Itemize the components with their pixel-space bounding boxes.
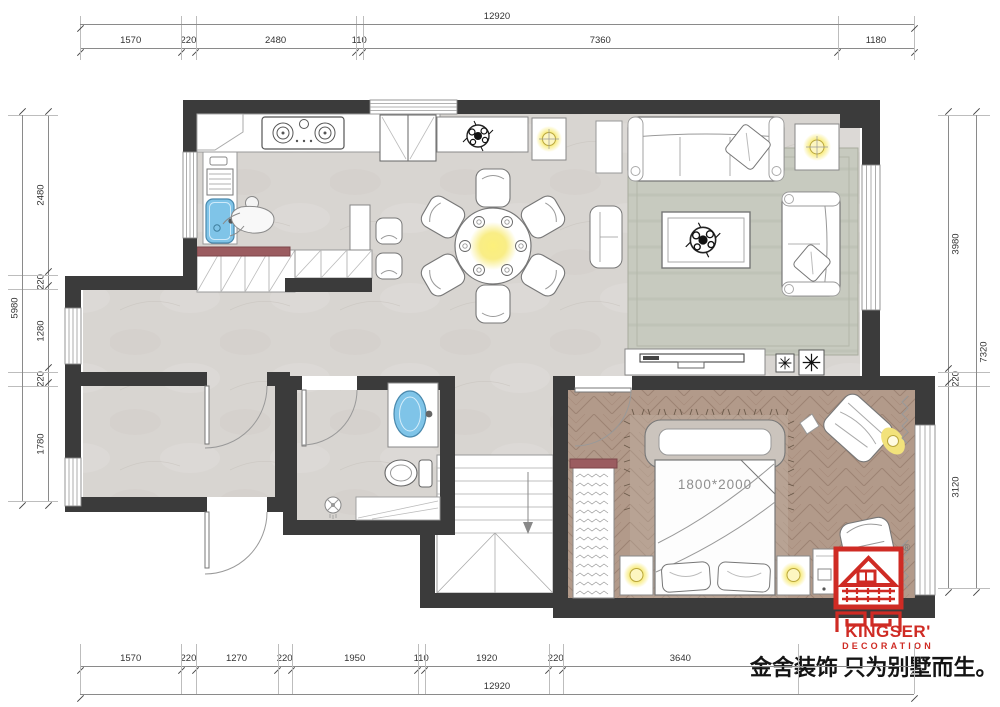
- red-wardrobe-strip: [570, 459, 617, 468]
- coffee-table: [662, 212, 750, 268]
- dim-label: 1920: [476, 653, 497, 664]
- door-exterior: [205, 512, 267, 574]
- stove: [262, 117, 344, 149]
- dimension-line-bottom: 15702201270220195011019202203640: [80, 652, 914, 667]
- kingser-logo-icon: [836, 549, 901, 632]
- dim-label: 3640: [670, 653, 691, 664]
- plant-icon: [803, 354, 821, 372]
- dim-label: 220: [548, 653, 564, 664]
- bed: [645, 420, 785, 595]
- dimension-line-left: 248022012802201780: [34, 115, 49, 501]
- dim-total-label: 12920: [484, 681, 510, 692]
- dimension-total-right: 7320: [976, 115, 991, 588]
- bed-size-label: 1800*2000: [655, 477, 775, 492]
- kitchen-sink: [206, 199, 234, 243]
- dim-total-label: 12920: [484, 11, 510, 22]
- dim-label: 3120: [951, 477, 962, 498]
- window-kitchen-left: [183, 152, 197, 238]
- logo-wordmark: KINGSER': [833, 622, 943, 642]
- dim-total-label: 5980: [10, 297, 21, 318]
- window-living-right: [862, 165, 880, 310]
- dim-label: 1950: [344, 653, 365, 664]
- bar-stool: [376, 253, 402, 279]
- red-counter-strip: [197, 247, 290, 256]
- dish-rack: [207, 169, 233, 195]
- loveseat: [782, 192, 840, 296]
- dim-label: 7360: [590, 35, 611, 46]
- registered-mark-icon: ®: [903, 543, 910, 554]
- pillow: [661, 561, 711, 592]
- shower-tray: [356, 497, 440, 520]
- dimension-line-top: 1570220248011073601180: [80, 34, 914, 49]
- dim-label: 1280: [36, 320, 47, 341]
- dim-label: 220: [181, 35, 197, 46]
- dimension-line-right: 39802203120: [948, 115, 963, 588]
- dim-label: 1570: [120, 35, 141, 46]
- soap-dish: [210, 157, 227, 165]
- tv-cabinet: [625, 349, 765, 375]
- window-room-lower: [65, 458, 81, 506]
- dim-label: 220: [181, 653, 197, 664]
- dim-label: 1780: [36, 433, 47, 454]
- window-bedroom-right: [915, 425, 935, 595]
- dim-label: 2480: [265, 35, 286, 46]
- dim-label: 220: [277, 653, 293, 664]
- extension-line: [8, 501, 58, 502]
- dim-label: 1270: [226, 653, 247, 664]
- nightstand-right: [777, 556, 810, 595]
- dim-label: 1570: [120, 653, 141, 664]
- dim-total-label: 7320: [979, 341, 990, 362]
- dim-label: 2480: [36, 184, 47, 205]
- dim-label: 1180: [866, 35, 886, 46]
- lamp-table-right: [795, 124, 839, 170]
- plant-boxes: [776, 350, 824, 375]
- extension-line: [938, 588, 990, 589]
- toilet: [385, 460, 432, 487]
- floor-plan-page: 1800*2000 KINGSER' DECORATION ® 金舍装饰 只为别…: [0, 0, 1000, 707]
- armchair-living: [590, 206, 622, 268]
- window-room-upper: [65, 308, 81, 364]
- dining-chair: [476, 169, 510, 207]
- dimension-total-bottom: 12920: [80, 680, 914, 695]
- dim-label: 3980: [951, 233, 962, 254]
- dimension-total-left: 5980: [8, 115, 23, 501]
- side-cabinet: [596, 121, 622, 173]
- lamp-table-left: [532, 118, 566, 160]
- sofa-main: [628, 117, 784, 181]
- window-top: [370, 100, 457, 114]
- wardrobe: [570, 459, 617, 598]
- extension-line: [914, 16, 915, 60]
- pillow: [717, 562, 770, 593]
- bar-stool: [376, 218, 402, 244]
- dining-chair: [476, 285, 510, 323]
- dimension-total-top: 12920: [80, 10, 914, 25]
- fridge: [380, 115, 436, 161]
- extension-line: [914, 644, 915, 694]
- nightstand-left: [620, 556, 653, 595]
- floor-plan-drawing: [0, 0, 1000, 707]
